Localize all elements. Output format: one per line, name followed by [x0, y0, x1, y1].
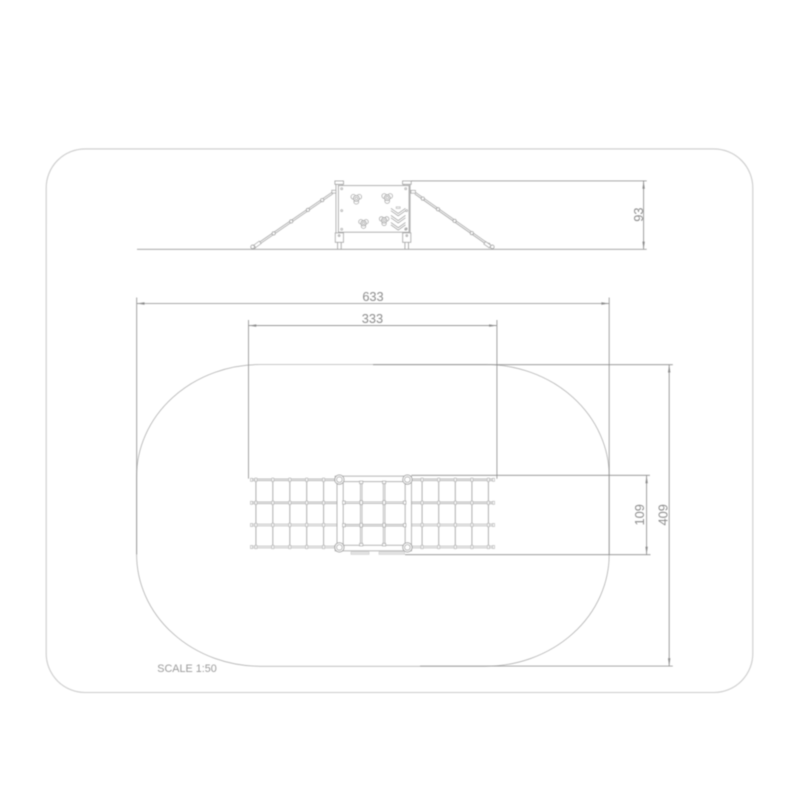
svg-text:633: 633 — [362, 289, 383, 304]
svg-text:409: 409 — [655, 504, 670, 525]
svg-text:SCALE 1:50: SCALE 1:50 — [157, 663, 216, 675]
svg-text:109: 109 — [632, 504, 647, 525]
svg-text:93: 93 — [631, 207, 646, 221]
svg-text:333: 333 — [362, 311, 383, 326]
